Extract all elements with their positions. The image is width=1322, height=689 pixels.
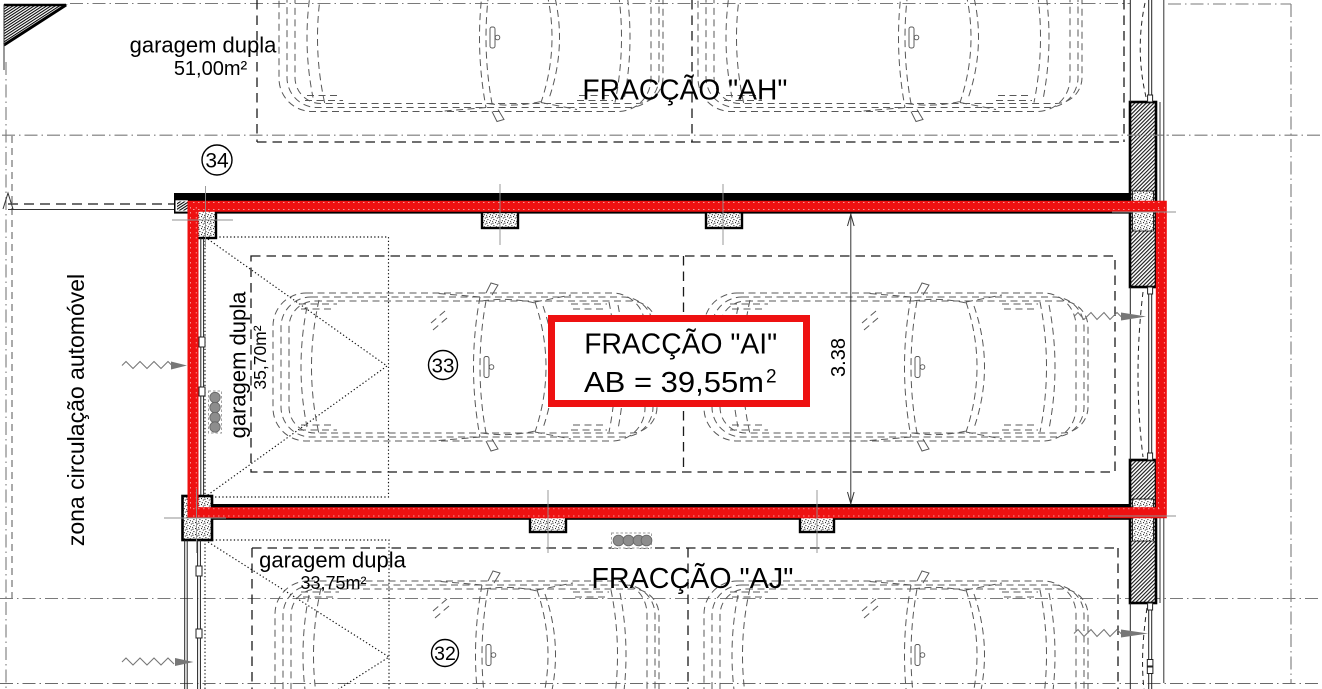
svg-text:AB = 39,55m: AB = 39,55m [584, 367, 764, 399]
svg-text:FRACÇÃO "AI": FRACÇÃO "AI" [584, 328, 777, 360]
svg-text:garagem dupla: garagem dupla [259, 547, 407, 572]
svg-text:garagem dupla: garagem dupla [226, 291, 251, 439]
svg-text:35,70m²: 35,70m² [250, 325, 270, 389]
svg-text:32: 32 [434, 643, 456, 665]
svg-text:3.38: 3.38 [828, 338, 850, 377]
svg-text:zona circulação automóvel: zona circulação automóvel [63, 274, 89, 546]
svg-text:FRACÇÃO "AH": FRACÇÃO "AH" [582, 72, 787, 106]
svg-text:FRACÇÃO "AJ": FRACÇÃO "AJ" [591, 561, 793, 595]
svg-text:33,75m²: 33,75m² [300, 573, 366, 593]
svg-text:2: 2 [766, 367, 777, 388]
svg-text:33: 33 [432, 355, 455, 378]
svg-text:51,00m²: 51,00m² [174, 58, 248, 80]
svg-text:garagem dupla: garagem dupla [130, 32, 278, 57]
svg-text:34: 34 [205, 150, 229, 173]
